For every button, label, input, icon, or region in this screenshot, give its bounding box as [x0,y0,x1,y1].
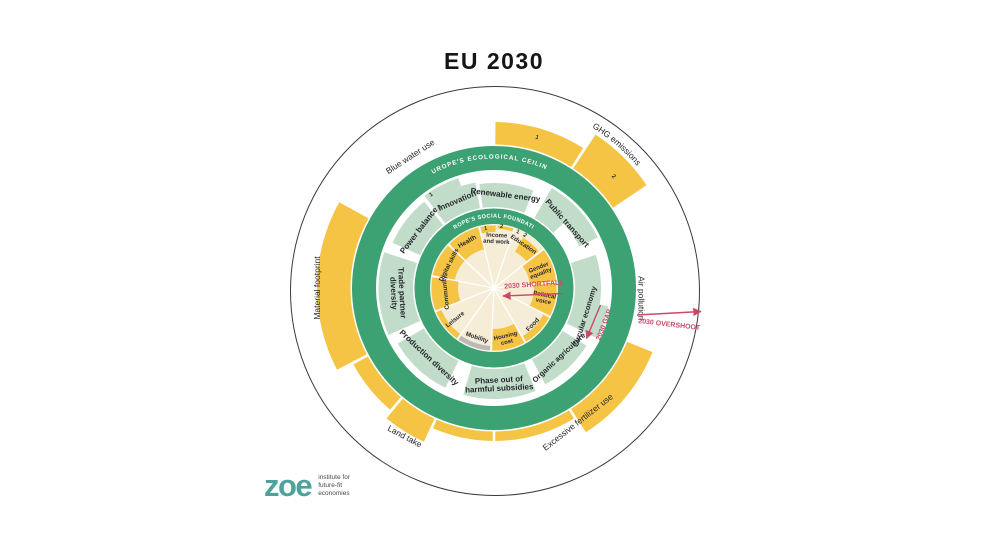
zoe-tagline-line: economies [318,490,350,498]
svg-text:Incomeand work: Incomeand work [483,232,511,246]
eu-2030-compass-chart: EUROPE'S ECOLOGICAL CEILINGEUROPE'S SOCI… [0,0,988,556]
material-footprint-label: Material footprint [312,256,322,320]
label-income-and-work: Incomeand work [483,232,511,246]
eu-2030-compass-slide: EU 2030 EUROPE'S ECOLOGICAL CEILINGEUROP… [0,0,988,556]
overshoot-label: 2030 OVERSHOOT [638,318,701,332]
zoe-tagline: institute for future-fit economies [318,474,350,498]
svg-text:Material footprint: Material footprint [312,256,322,320]
zoe-logo: zoe institute for future-fit economies [264,474,350,499]
zoe-tagline-line: institute for [318,474,350,482]
zoe-tagline-line: future-fit [318,482,350,490]
svg-text:2030 OVERSHOOT: 2030 OVERSHOOT [638,318,701,332]
zoe-wordmark: zoe [264,474,311,499]
